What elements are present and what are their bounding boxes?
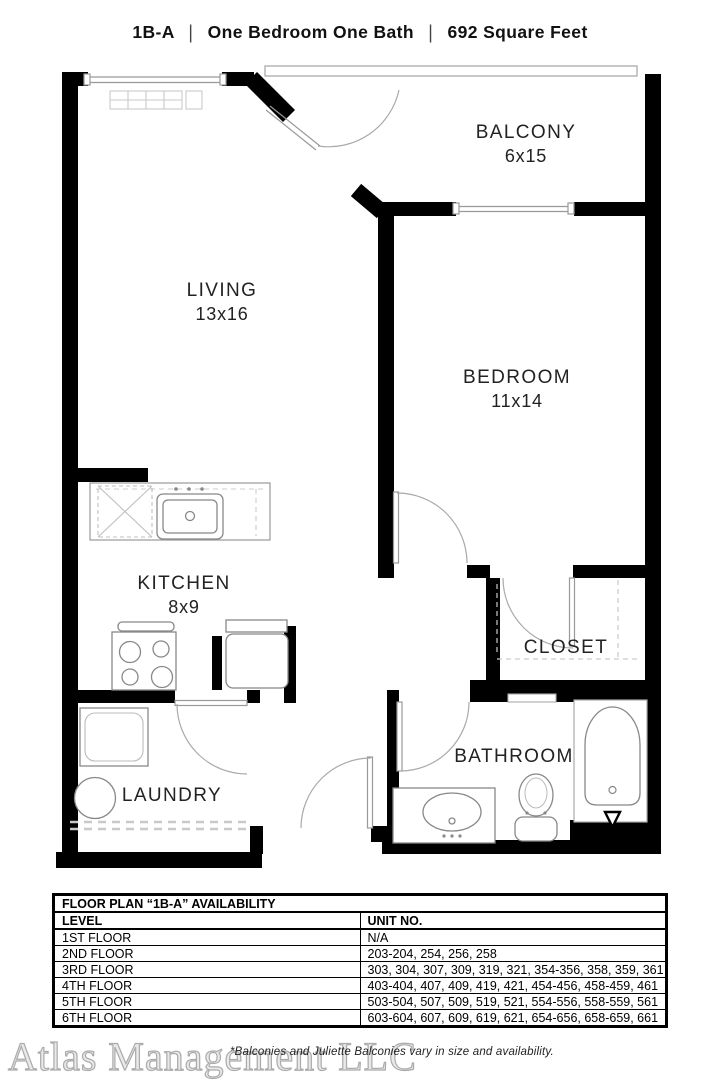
table-title-row: FLOOR PLAN “1B-A” AVAILABILITY bbox=[54, 895, 666, 912]
hall-door bbox=[301, 757, 373, 828]
room-label-laundry: LAUNDRY bbox=[122, 785, 222, 806]
room-label-closet: CLOSET bbox=[524, 637, 608, 658]
table-row: 2ND FLOOR 203-204, 254, 256, 258 bbox=[54, 946, 666, 962]
table-row: 6TH FLOOR 603-604, 607, 609, 619, 621, 6… bbox=[54, 1010, 666, 1027]
table-header-row: LEVEL UNIT NO. bbox=[54, 912, 666, 929]
laundry-door bbox=[175, 701, 247, 775]
stove bbox=[112, 622, 176, 690]
floor-plan-page: 1B-A | One Bedroom One Bath | 692 Square… bbox=[0, 0, 720, 1080]
table-title: FLOOR PLAN “1B-A” AVAILABILITY bbox=[54, 895, 666, 912]
bathtub bbox=[574, 700, 647, 827]
room-dims-bedroom: 11x14 bbox=[491, 391, 543, 411]
vanity-sink bbox=[393, 788, 495, 843]
bedroom-window bbox=[453, 203, 574, 214]
units-cell: 403-404, 407, 409, 419, 421, 454-456, 45… bbox=[360, 978, 666, 994]
units-cell: 203-204, 254, 256, 258 bbox=[360, 946, 666, 962]
units-cell: N/A bbox=[360, 929, 666, 946]
room-label-balcony: BALCONY bbox=[476, 122, 577, 143]
entry-balcony-door bbox=[266, 90, 399, 150]
table-row: 1ST FLOOR N/A bbox=[54, 929, 666, 946]
room-dims-balcony: 6x15 bbox=[505, 146, 547, 166]
balcony-footnote: *Balconies and Juliette Balconies vary i… bbox=[230, 1046, 554, 1058]
table-row: 4TH FLOOR 403-404, 407, 409, 419, 421, 4… bbox=[54, 978, 666, 994]
level-cell: 1ST FLOOR bbox=[54, 929, 360, 946]
level-cell: 2ND FLOOR bbox=[54, 946, 360, 962]
room-label-bedroom: BEDROOM bbox=[463, 367, 571, 388]
availability-table: FLOOR PLAN “1B-A” AVAILABILITY LEVEL UNI… bbox=[53, 894, 667, 1027]
laundry-shelf bbox=[70, 822, 247, 829]
level-cell: 5TH FLOOR bbox=[54, 994, 360, 1010]
level-cell: 3RD FLOOR bbox=[54, 962, 360, 978]
utility-tub bbox=[75, 778, 116, 819]
room-label-bathroom: BATHROOM bbox=[454, 746, 574, 767]
units-cell: 303, 304, 307, 309, 319, 321, 354-356, 3… bbox=[360, 962, 666, 978]
room-dims-living: 13x16 bbox=[195, 304, 248, 324]
toilet bbox=[515, 774, 557, 841]
table-row: 3RD FLOOR 303, 304, 307, 309, 319, 321, … bbox=[54, 962, 666, 978]
room-dims-kitchen: 8x9 bbox=[168, 597, 199, 617]
balcony-railing bbox=[265, 66, 637, 76]
bedroom-door bbox=[394, 492, 468, 563]
level-cell: 4TH FLOOR bbox=[54, 978, 360, 994]
column-header-units: UNIT NO. bbox=[360, 912, 666, 929]
table-row: 5TH FLOOR 503-504, 507, 509, 519, 521, 5… bbox=[54, 994, 666, 1010]
living-window bbox=[84, 74, 226, 85]
refrigerator bbox=[226, 620, 288, 688]
kitchen-sink bbox=[157, 487, 223, 539]
baseboard-heater bbox=[110, 91, 202, 109]
column-header-level: LEVEL bbox=[54, 912, 360, 929]
room-label-living: LIVING bbox=[187, 280, 258, 301]
room-label-kitchen: KITCHEN bbox=[137, 573, 230, 594]
units-cell: 503-504, 507, 509, 519, 521, 554-556, 55… bbox=[360, 994, 666, 1010]
bathroom-shelf bbox=[508, 694, 556, 702]
washer bbox=[80, 708, 148, 766]
units-cell: 603-604, 607, 609, 619, 621, 654-656, 65… bbox=[360, 1010, 666, 1027]
level-cell: 6TH FLOOR bbox=[54, 1010, 360, 1027]
floor-plan-drawing: LIVING 13x16 BALCONY 6x15 BEDROOM 11x14 … bbox=[0, 0, 720, 890]
